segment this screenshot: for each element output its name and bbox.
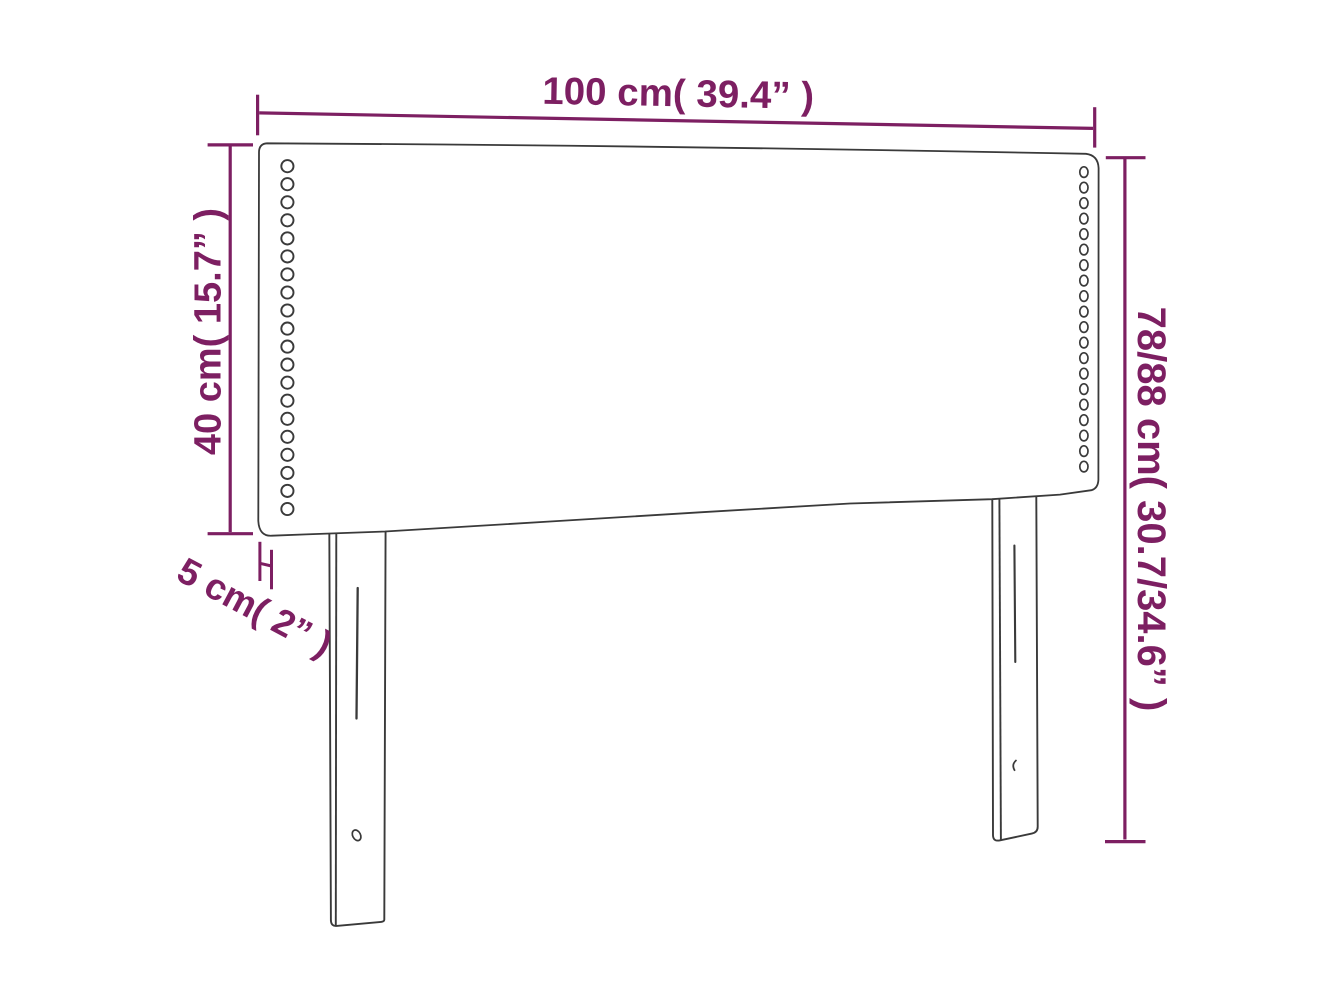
- svg-text:78/88 cm( 30.7/34.6” ): 78/88 cm( 30.7/34.6” ): [1129, 307, 1173, 712]
- svg-text:40 cm( 15.7” ): 40 cm( 15.7” ): [188, 208, 230, 455]
- svg-text:100 cm( 39.4” ): 100 cm( 39.4” ): [542, 70, 815, 118]
